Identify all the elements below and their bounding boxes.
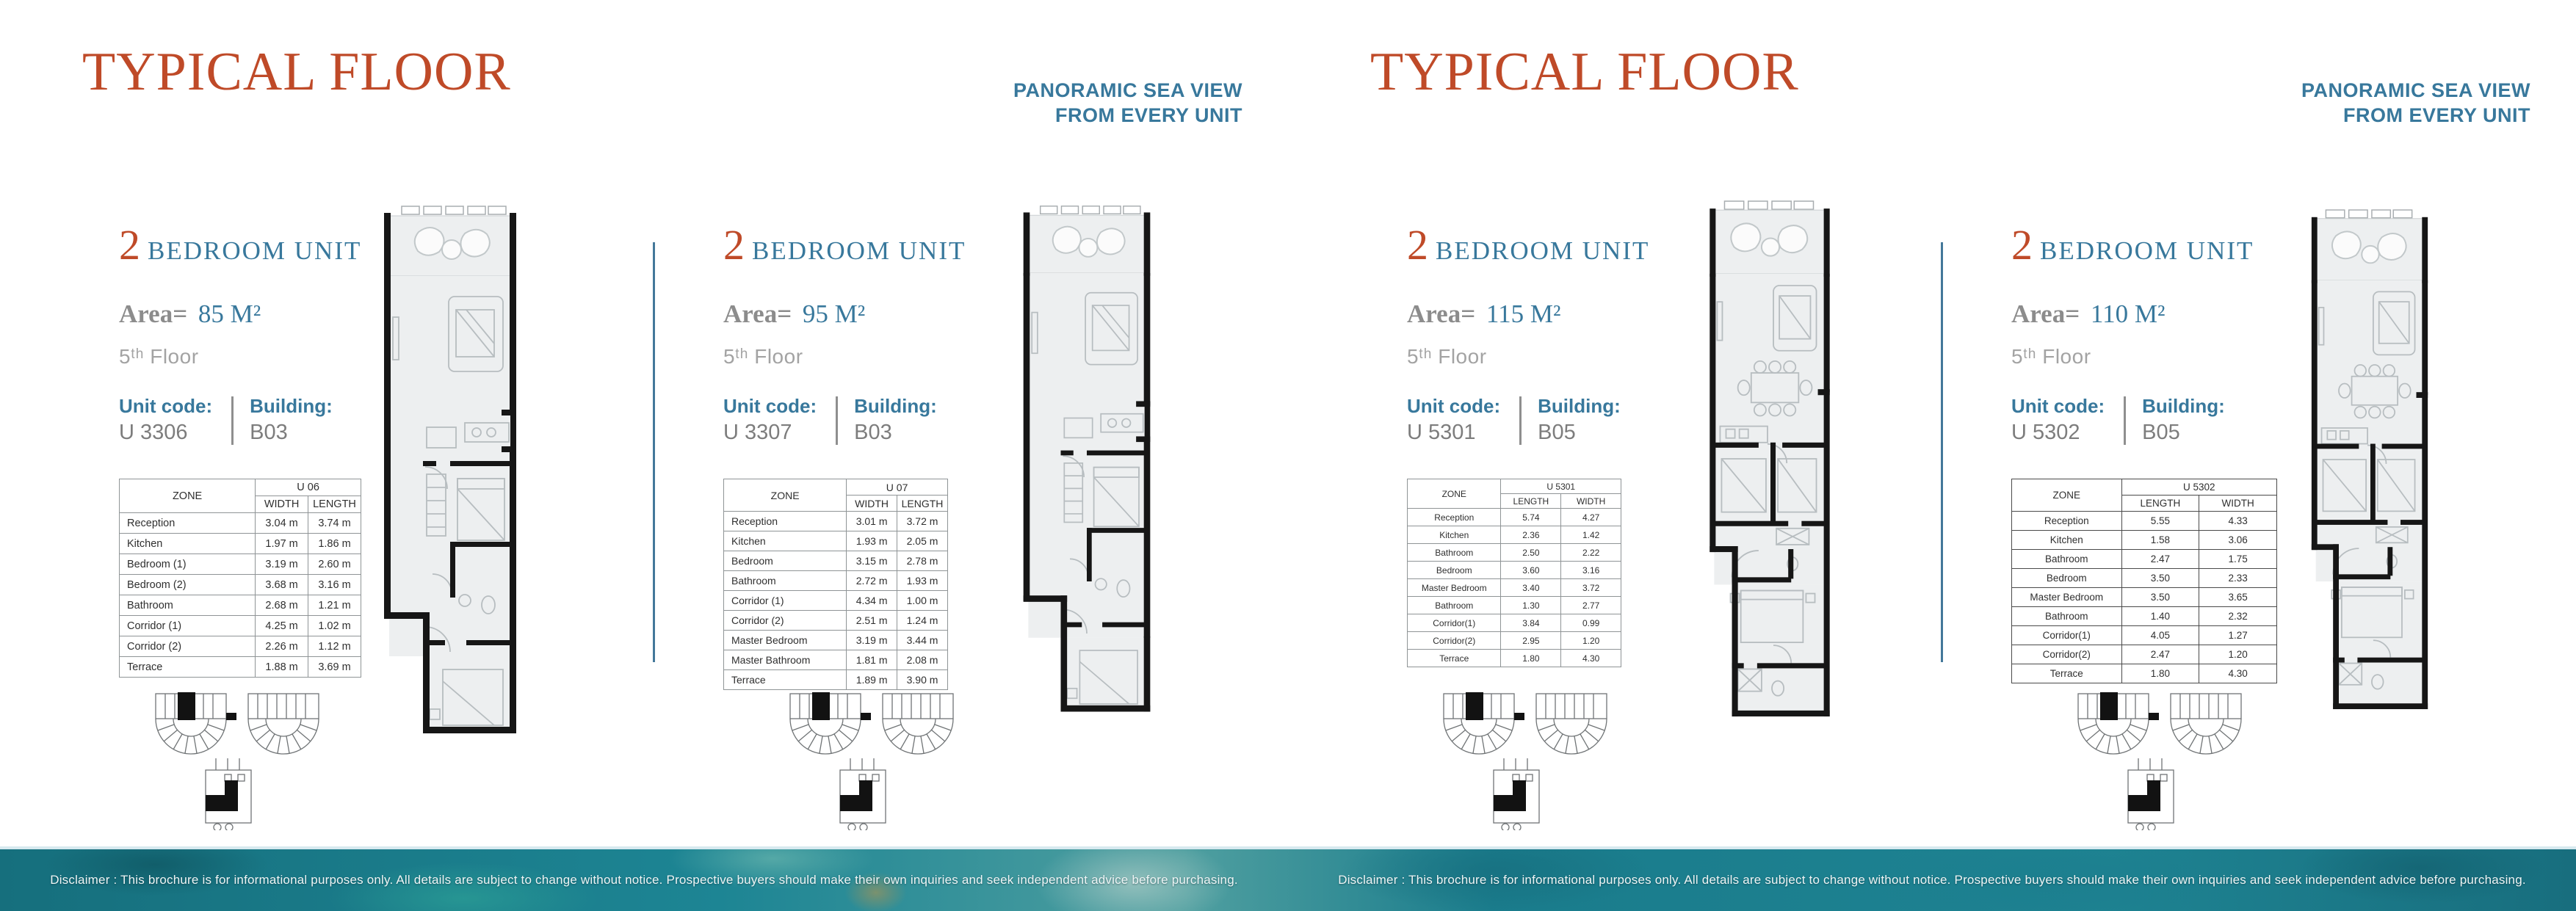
zone-dimension: 3.16 m (308, 575, 361, 595)
zone-row: Master Bedroom3.403.72 (1408, 579, 1621, 597)
zone-name: Reception (1408, 509, 1501, 526)
zone-dimension: 4.27 (1561, 509, 1621, 526)
zone-row: Corridor (2)2.51 m1.24 m (724, 611, 948, 631)
zone-dimension: 3.19 m (256, 554, 308, 575)
zone-dimension: 1.58 (2121, 531, 2199, 550)
zone-dimension: 1.81 m (847, 650, 897, 670)
page-left: TYPICAL FLOOR PANORAMIC SEA VIEW FROM EV… (0, 0, 1288, 911)
area-value: 115 M² (1486, 300, 1561, 328)
zone-dimensions-table: ZONE U 5301 LENGTH WIDTH Reception5.744.… (1407, 479, 1621, 667)
zone-dimension: 4.33 (2199, 512, 2277, 531)
zone-column-header: ZONE (2012, 479, 2122, 512)
tagline-line-2: FROM EVERY UNIT (1013, 103, 1242, 128)
area-label: Area= (2011, 300, 2080, 328)
zone-row: Kitchen1.97 m1.86 m (120, 534, 361, 554)
code-divider (2124, 396, 2126, 445)
zone-dimension: 3.15 m (847, 551, 897, 571)
tagline-line-1: PANORAMIC SEA VIEW (2301, 78, 2530, 103)
panel-divider-line (653, 242, 655, 662)
tagline-line-2: FROM EVERY UNIT (2301, 103, 2530, 128)
zone-dimension: 2.77 (1561, 597, 1621, 614)
zone-dimension: 1.12 m (308, 636, 361, 657)
zone-name: Corridor (2) (120, 636, 256, 657)
unit-code-block: Unit code: U 3307 (723, 395, 817, 445)
zone-dimension: 3.68 m (256, 575, 308, 595)
unit-code-block: Unit code: U 5302 (2011, 395, 2105, 445)
floor-plan-image (1018, 194, 1156, 728)
dim-col-1-header: LENGTH (2121, 496, 2199, 512)
sea-view-tagline: PANORAMIC SEA VIEW FROM EVERY UNIT (2301, 78, 2530, 128)
zone-name: Master Bedroom (2012, 588, 2122, 607)
zone-row: Corridor(2)2.471.20 (2012, 645, 2277, 664)
zone-dimension: 2.68 m (256, 595, 308, 616)
panel-divider-line (1941, 242, 1943, 662)
zone-dimension: 1.21 m (308, 595, 361, 616)
zone-dimension: 2.60 m (308, 554, 361, 575)
dim-col-1-header: LENGTH (1501, 494, 1561, 509)
zone-dimension: 5.74 (1501, 509, 1561, 526)
zone-dimension: 1.20 (1561, 632, 1621, 650)
zone-dimensions-table: ZONE U 06 WIDTH LENGTH Reception3.04 m3.… (119, 479, 361, 678)
unit-code-row: Unit code: U 3306 Building: B03 (119, 395, 333, 445)
dim-col-1-header: WIDTH (847, 496, 897, 512)
code-divider (231, 396, 234, 445)
zone-name: Master Bedroom (724, 631, 847, 650)
floor-plan-image (378, 203, 522, 741)
building-block: Building: B03 (854, 395, 937, 445)
code-divider (1519, 396, 1522, 445)
floor-label: 5ᵗʰ Floor (119, 345, 199, 369)
zone-dimension: 2.51 m (847, 611, 897, 631)
zone-name: Corridor (1) (724, 591, 847, 611)
zone-row: Bathroom1.402.32 (2012, 607, 2277, 626)
zone-row: Bedroom (1)3.19 m2.60 m (120, 554, 361, 575)
zone-row: Terrace1.88 m3.69 m (120, 657, 361, 678)
zone-dimension: 2.36 (1501, 526, 1561, 544)
area-line: Area= 85 M² (119, 300, 261, 329)
building-locator-map (1433, 685, 1610, 830)
zone-dimension: 1.80 (1501, 650, 1561, 667)
zone-name: Bathroom (2012, 607, 2122, 626)
zone-dimension: 2.95 (1501, 632, 1561, 650)
building-locator-map (780, 685, 956, 830)
zone-row: Terrace1.804.30 (2012, 664, 2277, 683)
zone-dimension: 1.75 (2199, 550, 2277, 569)
zone-row: Master Bedroom3.19 m3.44 m (724, 631, 948, 650)
zone-name: Corridor (1) (120, 616, 256, 636)
zone-dimensions-table: ZONE U 5302 LENGTH WIDTH Reception5.554.… (2011, 479, 2277, 683)
area-label: Area= (119, 300, 187, 328)
dim-col-2-header: LENGTH (308, 496, 361, 513)
unit-code-row: Unit code: U 5301 Building: B05 (1407, 395, 1621, 445)
zone-dimension: 1.97 m (256, 534, 308, 554)
zone-name: Corridor(1) (1408, 614, 1501, 632)
zone-name: Kitchen (120, 534, 256, 554)
zone-name: Corridor(1) (2012, 626, 2122, 645)
sea-view-tagline: PANORAMIC SEA VIEW FROM EVERY UNIT (1013, 78, 1242, 128)
unit-column-header: U 5302 (2121, 479, 2276, 496)
unit-type-label: BEDROOM UNIT (752, 236, 966, 265)
zone-dimension: 4.34 m (847, 591, 897, 611)
code-divider (836, 396, 838, 445)
zone-name: Bedroom (1408, 562, 1501, 579)
zone-row: Bathroom1.302.77 (1408, 597, 1621, 614)
building-block: Building: B03 (250, 395, 333, 445)
zone-dimension: 1.93 m (847, 531, 897, 551)
zone-dimension: 1.30 (1501, 597, 1561, 614)
zone-dimension: 1.88 m (256, 657, 308, 678)
zone-name: Reception (120, 513, 256, 534)
disclaimer-bar: Disclaimer : This brochure is for inform… (0, 846, 2576, 911)
zone-dimension: 2.22 (1561, 544, 1621, 562)
unit-code-value: U 5301 (1407, 421, 1500, 445)
tagline-line-1: PANORAMIC SEA VIEW (1013, 78, 1242, 103)
zone-name: Kitchen (724, 531, 847, 551)
zone-dimension: 3.16 (1561, 562, 1621, 579)
area-value: 110 M² (2091, 300, 2166, 328)
zone-name: Master Bathroom (724, 650, 847, 670)
floor-label: 5ᵗʰ Floor (723, 345, 803, 369)
zone-dimension: 4.05 (2121, 626, 2199, 645)
zone-dimension: 3.04 m (256, 513, 308, 534)
zone-name: Reception (2012, 512, 2122, 531)
zone-row: Bathroom2.471.75 (2012, 550, 2277, 569)
unit-title: 2BEDROOM UNIT (2011, 220, 2254, 269)
unit-panel-u3306: 2BEDROOM UNIT Area= 85 M² 5ᵗʰ Floor Unit… (119, 220, 413, 705)
unit-code-row: Unit code: U 3307 Building: B03 (723, 395, 937, 445)
unit-title: 2BEDROOM UNIT (723, 220, 966, 269)
area-value: 95 M² (803, 300, 865, 328)
unit-code-label: Unit code: (1407, 395, 1500, 418)
page-right: TYPICAL FLOOR PANORAMIC SEA VIEW FROM EV… (1288, 0, 2576, 911)
zone-name: Bedroom (724, 551, 847, 571)
unit-bedroom-count: 2 (2011, 221, 2033, 269)
zone-dimension: 3.19 m (847, 631, 897, 650)
zone-row: Corridor (2)2.26 m1.12 m (120, 636, 361, 657)
building-value: B05 (1538, 421, 1621, 445)
zone-row: Terrace1.804.30 (1408, 650, 1621, 667)
disclaimer-text: Disclaimer : This brochure is for inform… (1288, 849, 2576, 911)
zone-row: Reception3.04 m3.74 m (120, 513, 361, 534)
zone-name: Corridor (2) (724, 611, 847, 631)
zone-row: Corridor (1)4.25 m1.02 m (120, 616, 361, 636)
zone-dimension: 4.30 (2199, 664, 2277, 683)
building-label: Building: (1538, 395, 1621, 418)
zone-dimension: 1.00 m (897, 591, 948, 611)
building-value: B05 (2142, 421, 2225, 445)
zone-dimension: 5.55 (2121, 512, 2199, 531)
unit-code-value: U 3307 (723, 421, 817, 445)
unit-code-label: Unit code: (723, 395, 817, 418)
dim-col-2-header: WIDTH (1561, 494, 1621, 509)
zone-column-header: ZONE (1408, 479, 1501, 509)
zone-name: Bathroom (724, 571, 847, 591)
zone-row: Master Bathroom1.81 m2.08 m (724, 650, 948, 670)
zone-column-header: ZONE (120, 479, 256, 513)
building-block: Building: B05 (2142, 395, 2225, 445)
zone-row: Reception5.744.27 (1408, 509, 1621, 526)
floor-label: 5ᵗʰ Floor (1407, 345, 1487, 369)
zone-dimension: 3.50 (2121, 569, 2199, 588)
zone-name: Terrace (1408, 650, 1501, 667)
zone-name: Terrace (120, 657, 256, 678)
zone-row: Reception3.01 m3.72 m (724, 512, 948, 531)
area-line: Area= 95 M² (723, 300, 865, 329)
zone-dimension: 2.50 (1501, 544, 1561, 562)
zone-row: Reception5.554.33 (2012, 512, 2277, 531)
area-line: Area= 110 M² (2011, 300, 2166, 329)
area-label: Area= (723, 300, 792, 328)
zone-dimensions-table: ZONE U 07 WIDTH LENGTH Reception3.01 m3.… (723, 479, 948, 690)
zone-dimension: 0.99 (1561, 614, 1621, 632)
page-title: TYPICAL FLOOR (1370, 44, 1799, 101)
zone-row: Bathroom2.72 m1.93 m (724, 571, 948, 591)
zone-dimension: 3.84 (1501, 614, 1561, 632)
zone-name: Bedroom (2012, 569, 2122, 588)
zone-name: Master Bedroom (1408, 579, 1501, 597)
unit-type-label: BEDROOM UNIT (1436, 236, 1649, 265)
building-label: Building: (854, 395, 937, 418)
unit-code-value: U 3306 (119, 421, 212, 445)
zone-row: Bedroom3.502.33 (2012, 569, 2277, 588)
zone-row: Bathroom2.68 m1.21 m (120, 595, 361, 616)
zone-dimension: 2.26 m (256, 636, 308, 657)
zone-name: Reception (724, 512, 847, 531)
area-line: Area= 115 M² (1407, 300, 1561, 329)
zone-dimension: 2.47 (2121, 550, 2199, 569)
building-label: Building: (250, 395, 333, 418)
zone-dimension: 3.40 (1501, 579, 1561, 597)
zone-dimension: 3.44 m (897, 631, 948, 650)
zone-dimension: 2.33 (2199, 569, 2277, 588)
zone-row: Corridor (1)4.34 m1.00 m (724, 591, 948, 611)
zone-dimension: 1.27 (2199, 626, 2277, 645)
unit-code-block: Unit code: U 3306 (119, 395, 212, 445)
page-title: TYPICAL FLOOR (82, 44, 511, 101)
building-block: Building: B05 (1538, 395, 1621, 445)
unit-panel-u5302: 2BEDROOM UNIT Area= 110 M² 5ᵗʰ Floor Uni… (2011, 220, 2305, 705)
zone-column-header: ZONE (724, 479, 847, 512)
unit-code-block: Unit code: U 5301 (1407, 395, 1500, 445)
zone-dimension: 3.69 m (308, 657, 361, 678)
unit-title: 2BEDROOM UNIT (1407, 220, 1649, 269)
dim-col-2-header: LENGTH (897, 496, 948, 512)
unit-type-label: BEDROOM UNIT (148, 236, 361, 265)
unit-code-label: Unit code: (2011, 395, 2105, 418)
zone-name: Kitchen (2012, 531, 2122, 550)
zone-dimension: 2.78 m (897, 551, 948, 571)
zone-dimension: 3.50 (2121, 588, 2199, 607)
zone-dimension: 1.40 (2121, 607, 2199, 626)
unit-type-label: BEDROOM UNIT (2040, 236, 2254, 265)
building-label: Building: (2142, 395, 2225, 418)
zone-name: Bathroom (1408, 597, 1501, 614)
zone-dimension: 1.24 m (897, 611, 948, 631)
building-locator-map (2068, 685, 2244, 830)
zone-dimension: 1.93 m (897, 571, 948, 591)
zone-name: Bathroom (1408, 544, 1501, 562)
zone-dimension: 3.72 m (897, 512, 948, 531)
unit-panel-u3307: 2BEDROOM UNIT Area= 95 M² 5ᵗʰ Floor Unit… (723, 220, 1017, 705)
zone-dimension: 1.02 m (308, 616, 361, 636)
dim-col-2-header: WIDTH (2199, 496, 2277, 512)
zone-dimension: 2.47 (2121, 645, 2199, 664)
zone-row: Bedroom (2)3.68 m3.16 m (120, 575, 361, 595)
unit-bedroom-count: 2 (119, 221, 140, 269)
zone-row: Kitchen1.93 m2.05 m (724, 531, 948, 551)
unit-title: 2BEDROOM UNIT (119, 220, 361, 269)
zone-name: Bathroom (120, 595, 256, 616)
zone-row: Corridor(1)3.840.99 (1408, 614, 1621, 632)
zone-dimension: 1.42 (1561, 526, 1621, 544)
unit-column-header: U 06 (256, 479, 361, 496)
zone-row: Bedroom3.15 m2.78 m (724, 551, 948, 571)
unit-panel-u5301: 2BEDROOM UNIT Area= 115 M² 5ᵗʰ Floor Uni… (1407, 220, 1701, 705)
zone-dimension: 2.72 m (847, 571, 897, 591)
zone-dimension: 3.01 m (847, 512, 897, 531)
zone-name: Terrace (2012, 664, 2122, 683)
unit-column-header: U 07 (847, 479, 948, 496)
zone-dimension: 2.32 (2199, 607, 2277, 626)
zone-dimension: 1.86 m (308, 534, 361, 554)
zone-row: Bedroom3.603.16 (1408, 562, 1621, 579)
zone-row: Corridor(1)4.051.27 (2012, 626, 2277, 645)
zone-name: Corridor(2) (1408, 632, 1501, 650)
dim-col-1-header: WIDTH (256, 496, 308, 513)
building-value: B03 (250, 421, 333, 445)
zone-dimension: 2.05 m (897, 531, 948, 551)
zone-row: Bathroom2.502.22 (1408, 544, 1621, 562)
zone-dimension: 3.06 (2199, 531, 2277, 550)
unit-code-row: Unit code: U 5302 Building: B05 (2011, 395, 2225, 445)
zone-row: Master Bedroom3.503.65 (2012, 588, 2277, 607)
zone-dimension: 1.80 (2121, 664, 2199, 683)
unit-bedroom-count: 2 (1407, 221, 1428, 269)
zone-dimension: 4.25 m (256, 616, 308, 636)
brochure-spread: TYPICAL FLOOR PANORAMIC SEA VIEW FROM EV… (0, 0, 2576, 911)
building-value: B03 (854, 421, 937, 445)
area-value: 85 M² (198, 300, 261, 328)
unit-bedroom-count: 2 (723, 221, 745, 269)
unit-code-value: U 5302 (2011, 421, 2105, 445)
zone-row: Kitchen2.361.42 (1408, 526, 1621, 544)
zone-name: Bedroom (2) (120, 575, 256, 595)
zone-name: Kitchen (1408, 526, 1501, 544)
zone-dimension: 3.65 (2199, 588, 2277, 607)
zone-name: Bedroom (1) (120, 554, 256, 575)
zone-dimension: 1.20 (2199, 645, 2277, 664)
area-label: Area= (1407, 300, 1475, 328)
unit-code-label: Unit code: (119, 395, 212, 418)
zone-dimension: 3.74 m (308, 513, 361, 534)
floor-label: 5ᵗʰ Floor (2011, 345, 2091, 369)
zone-dimension: 2.08 m (897, 650, 948, 670)
building-locator-map (145, 685, 322, 830)
zone-row: Kitchen1.583.06 (2012, 531, 2277, 550)
floor-plan-image (2307, 207, 2432, 714)
zone-row: Corridor(2)2.951.20 (1408, 632, 1621, 650)
zone-name: Corridor(2) (2012, 645, 2122, 664)
unit-column-header: U 5301 (1501, 479, 1621, 494)
disclaimer-text: Disclaimer : This brochure is for inform… (0, 849, 1288, 911)
floor-plan-image (1705, 198, 1834, 721)
zone-dimension: 3.60 (1501, 562, 1561, 579)
zone-dimension: 3.72 (1561, 579, 1621, 597)
zone-name: Bathroom (2012, 550, 2122, 569)
zone-dimension: 4.30 (1561, 650, 1621, 667)
